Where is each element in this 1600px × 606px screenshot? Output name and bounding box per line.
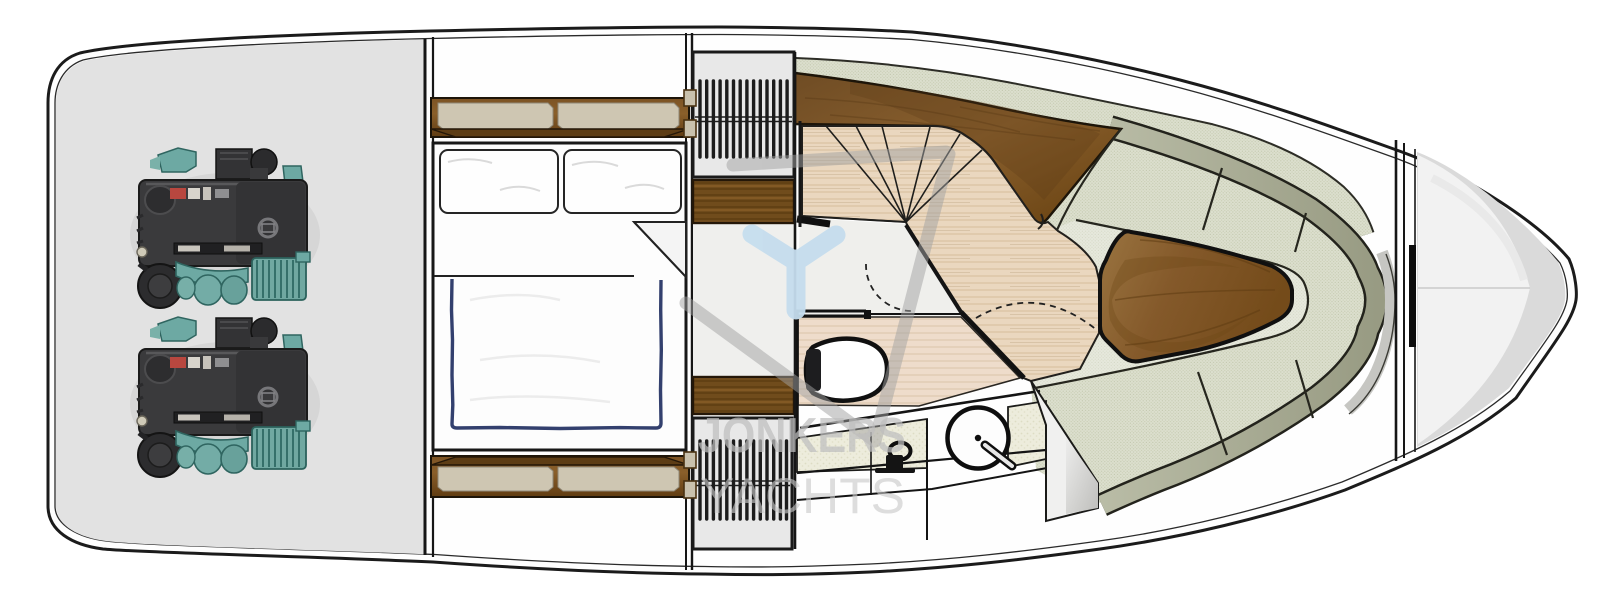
svg-text:YACHTS: YACHTS	[700, 468, 905, 524]
svg-text:JONKERS: JONKERS	[698, 409, 906, 463]
